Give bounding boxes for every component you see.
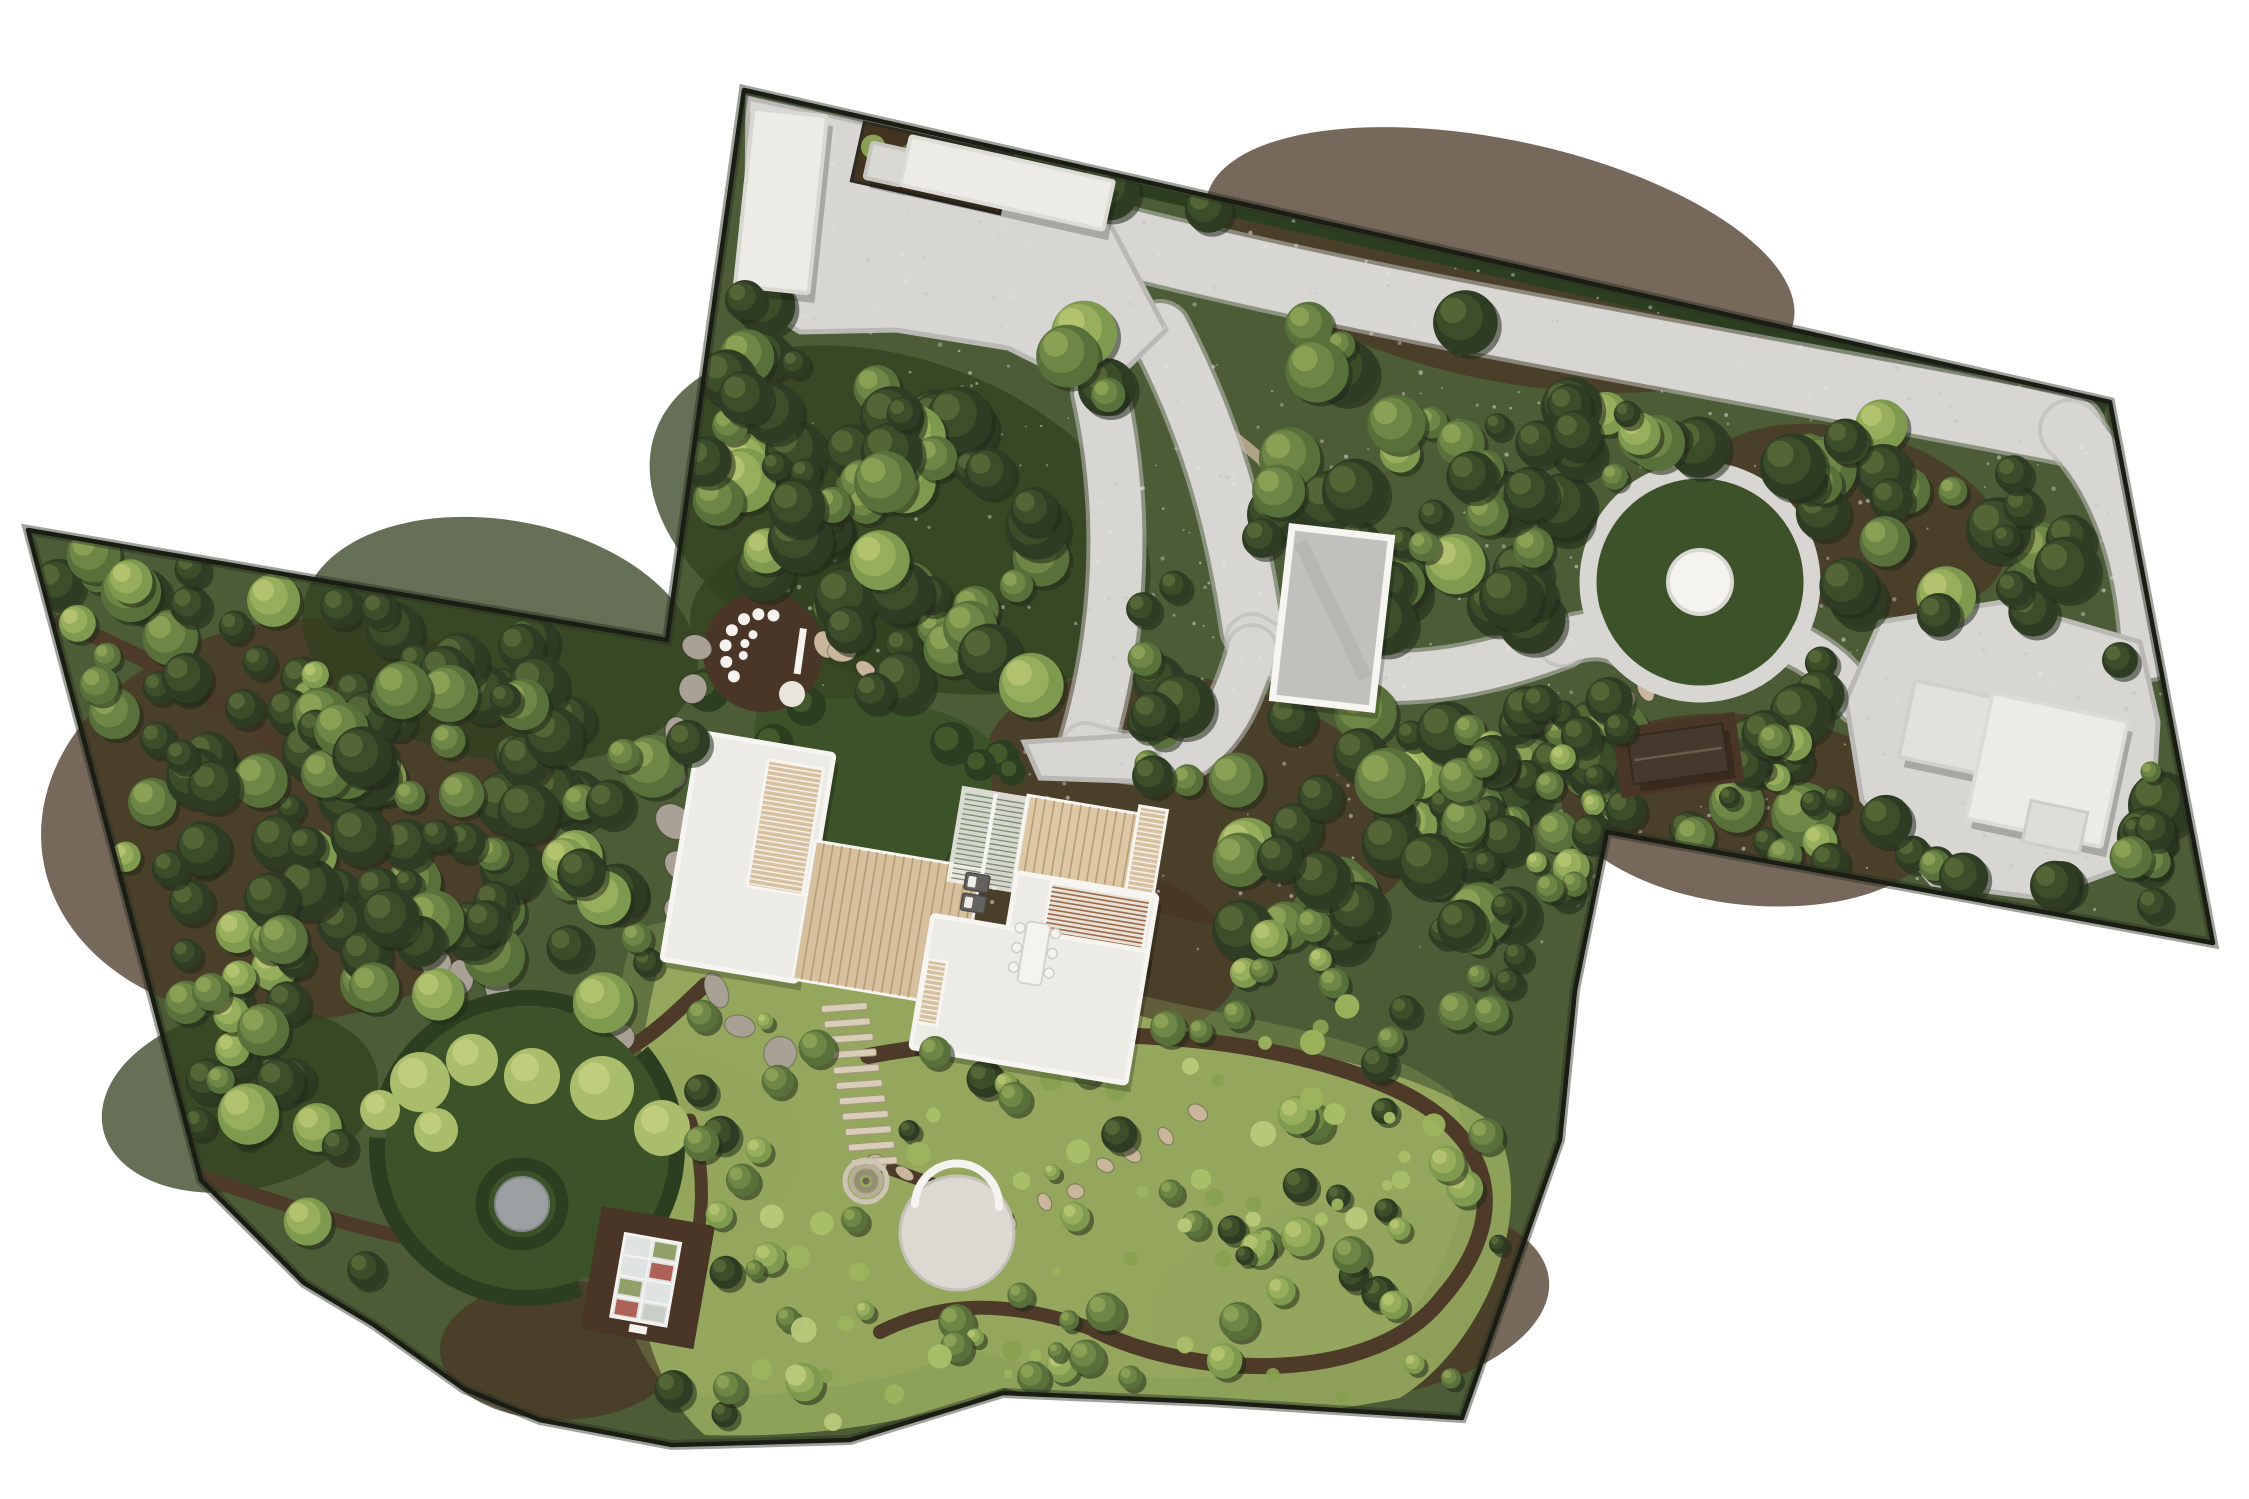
gravel-speckle: [1346, 784, 1350, 788]
gravel-speckle: [2063, 262, 2065, 264]
gravel-speckle: [1219, 700, 1221, 702]
tree-canopy-light: [1400, 724, 1412, 736]
gravel-speckle: [1917, 906, 1919, 908]
tree-canopy-light: [551, 930, 569, 948]
tree-canopy-light: [1215, 759, 1237, 781]
gravel-speckle: [1850, 651, 1852, 653]
gravel-speckle: [1046, 464, 1048, 466]
gravel-speckle: [1095, 560, 1099, 564]
gravel-speckle: [2127, 774, 2129, 776]
tree-canopy-light: [779, 1309, 789, 1319]
gravel-speckle: [1656, 112, 1659, 115]
gravel-speckle: [801, 314, 804, 317]
gravel-speckle: [1799, 345, 1803, 349]
meadow-shrub: [1004, 1369, 1013, 1378]
tree-canopy-light: [305, 664, 316, 675]
gravel-speckle: [1700, 806, 1702, 808]
gravel-speckle: [1875, 368, 1877, 370]
tree-canopy-light: [774, 485, 797, 508]
gravel-speckle: [1657, 312, 1659, 314]
garage-building: [735, 109, 827, 294]
meadow-shrub: [849, 1262, 869, 1282]
tree-canopy-light: [2143, 764, 2151, 772]
tree-canopy-light: [1329, 1187, 1339, 1197]
tree-canopy-light: [1767, 441, 1794, 468]
gravel-speckle: [1485, 544, 1489, 548]
tree-canopy-light: [1875, 483, 1892, 500]
gravel-speckle: [1110, 512, 1113, 515]
gravel-speckle: [1477, 269, 1480, 272]
tree-canopy-light: [326, 1133, 340, 1147]
tree-canopy-light: [1865, 522, 1885, 542]
tree-canopy-light: [113, 564, 131, 582]
gravel-speckle: [2075, 237, 2077, 239]
gravel-speckle: [2035, 939, 2038, 942]
gravel-speckle: [1176, 172, 1180, 176]
tree-canopy-light: [209, 1069, 220, 1080]
gravel-speckle: [1929, 137, 1933, 141]
gravel-speckle: [1502, 544, 1506, 548]
gravel-speckle: [1207, 582, 1210, 585]
tree-canopy-light: [379, 668, 402, 691]
gravel-speckle: [2077, 696, 2081, 700]
gravel-speckle: [2114, 296, 2118, 300]
gravel-speckle: [1418, 370, 1423, 375]
gravel-speckle: [2192, 732, 2195, 735]
tree-canopy-light: [1374, 401, 1397, 424]
tree-canopy-light: [2114, 841, 2131, 858]
gravel-speckle: [1865, 717, 1869, 721]
gravel-speckle: [1348, 798, 1351, 801]
gravel-speckle: [1076, 263, 1079, 266]
gravel-speckle: [1914, 944, 1917, 947]
gravel-speckle: [1271, 390, 1274, 393]
tree-canopy-light: [923, 1040, 936, 1053]
gravel-speckle: [1222, 564, 1226, 568]
gravel-speckle: [1084, 640, 1087, 643]
gravel-speckle: [1629, 926, 1632, 929]
gravel-speckle: [1183, 529, 1185, 531]
tree-canopy-light: [1380, 1029, 1391, 1040]
tree-canopy-light: [156, 854, 171, 869]
gravel-speckle: [1025, 426, 1027, 428]
tree-canopy-light: [493, 687, 505, 699]
gravel-speckle: [1953, 89, 1957, 93]
gravel-speckle: [1639, 467, 1641, 469]
tree-canopy-light: [302, 714, 317, 729]
dining-chair: [1046, 948, 1058, 960]
gravel-speckle: [2045, 852, 2048, 855]
tree-canopy-light: [253, 580, 274, 601]
tree-canopy-light: [1541, 816, 1558, 833]
gravel-speckle: [813, 317, 817, 321]
sun-lounger: [964, 872, 990, 893]
gravel-speckle: [1173, 160, 1176, 163]
gravel-speckle: [1173, 614, 1176, 617]
gravel-speckle: [1127, 153, 1129, 155]
gravel-speckle: [1776, 205, 1778, 207]
gravel-speckle: [1402, 392, 1406, 396]
tree-canopy-light: [226, 964, 240, 978]
gravel-speckle: [2182, 143, 2184, 145]
meadow-shrub: [1315, 1213, 1328, 1226]
tree-canopy-light: [1487, 821, 1507, 841]
tree-canopy-light: [1339, 734, 1360, 755]
tree-canopy-light: [1861, 405, 1882, 426]
gravel-speckle: [808, 606, 812, 610]
garden-stool: [726, 624, 738, 636]
tree-canopy-light: [444, 777, 462, 795]
gravel-speckle: [1062, 782, 1066, 786]
gravel-speckle: [1772, 103, 1775, 106]
meadow-shrub: [1324, 1103, 1346, 1125]
gravel-speckle: [1896, 130, 1899, 133]
gravel-speckle: [2055, 367, 2057, 369]
tree-canopy-light: [504, 788, 528, 812]
gravel-speckle: [1995, 206, 1998, 209]
gravel-speckle: [1385, 676, 1388, 679]
tree-canopy-light: [1944, 858, 1964, 878]
dining-chair: [1011, 942, 1023, 954]
tree-canopy-light: [1290, 307, 1309, 326]
gravel-speckle: [1661, 391, 1663, 393]
garden-pond: [495, 1177, 549, 1231]
gravel-speckle: [1189, 532, 1191, 534]
tree-canopy-light: [2139, 815, 2155, 831]
gravel-speckle: [1810, 419, 1812, 421]
gravel-speckle: [2196, 373, 2201, 378]
gravel-speckle: [1972, 104, 1976, 108]
tree-canopy-light: [1922, 598, 1940, 616]
tree-canopy-light: [219, 1036, 233, 1050]
gravel-speckle: [1070, 717, 1073, 720]
gravel-speckle: [2113, 190, 2115, 192]
tree-canopy-light: [133, 783, 152, 802]
gravel-speckle: [2009, 864, 2013, 868]
gravel-speckle: [832, 140, 835, 143]
gravel-speckle: [1766, 114, 1770, 118]
gravel-speckle: [1066, 796, 1070, 800]
gravel-speckle: [1021, 146, 1023, 148]
tree-canopy-light: [1923, 573, 1947, 597]
gravel-speckle: [999, 326, 1002, 329]
tree-canopy-light: [688, 1129, 702, 1143]
gravel-speckle: [1997, 455, 2001, 459]
tree-canopy-light: [1826, 564, 1849, 587]
tree-canopy-light: [144, 726, 158, 740]
tree-canopy-light: [785, 353, 796, 364]
gravel-speckle: [1164, 366, 1168, 370]
tree-canopy-light: [2126, 820, 2136, 830]
site-content: [34, 88, 2201, 1435]
tree-canopy-light: [1137, 760, 1154, 777]
tree-canopy-light: [1390, 1220, 1399, 1229]
tree-canopy-light: [844, 1209, 855, 1220]
tree-canopy-light: [1405, 840, 1431, 866]
gravel-speckle: [1129, 302, 1132, 305]
gravel-speckle: [1232, 473, 1235, 476]
gravel-speckle: [1028, 606, 1031, 609]
meadow-shrub: [1052, 1268, 1060, 1276]
tree-canopy-light: [174, 590, 190, 606]
gravel-speckle: [1075, 88, 1079, 92]
gravel-speckle: [1787, 360, 1789, 362]
gravel-speckle: [1504, 452, 1508, 456]
meadow-shrub: [1266, 1368, 1280, 1382]
tree-canopy-light: [1721, 789, 1730, 798]
meadow-shrub: [1258, 1036, 1272, 1050]
gravel-speckle: [2100, 539, 2103, 542]
gravel-speckle: [1856, 649, 1858, 651]
tree-canopy-light: [1923, 853, 1936, 866]
tree-canopy-light: [1586, 768, 1597, 779]
meadow-shrub: [760, 1204, 784, 1228]
gravel-speckle: [2119, 348, 2122, 351]
tree-canopy-light: [1440, 297, 1466, 323]
tree-canopy-light: [1815, 847, 1830, 862]
gravel-speckle: [1807, 394, 1810, 397]
gravel-speckle: [874, 303, 877, 306]
gravel-speckle: [1276, 272, 1278, 274]
tree-canopy-light: [1995, 527, 2006, 538]
gravel-speckle: [2007, 344, 2011, 348]
gravel-speckle: [1344, 454, 1348, 458]
gravel-speckle: [1741, 847, 1745, 851]
tree-canopy-light: [1377, 1201, 1387, 1211]
gravel-speckle: [1671, 147, 1673, 149]
meadow-shrub: [1206, 1189, 1224, 1207]
gravel-speckle: [1970, 183, 1973, 186]
gravel-speckle: [1121, 689, 1124, 692]
gravel-speckle: [1916, 877, 1919, 880]
meadow-shrub: [838, 1316, 854, 1332]
gravel-speckle: [924, 292, 928, 296]
gravel-speckle: [1832, 229, 1835, 232]
gravel-speckle: [909, 371, 912, 374]
gravel-speckle: [1204, 131, 1206, 133]
gravel-speckle: [1770, 245, 1774, 249]
tree-canopy-light: [1252, 961, 1262, 971]
gravel-speckle: [2120, 634, 2122, 636]
gravel-speckle: [2066, 122, 2069, 125]
gravel-speckle: [868, 330, 872, 334]
gravel-speckle: [1941, 95, 1945, 99]
gravel-speckle: [2071, 141, 2074, 144]
gravel-speckle: [1225, 475, 1229, 479]
gravel-speckle: [991, 296, 995, 300]
gravel-speckle: [934, 110, 937, 113]
gravel-speckle: [1179, 440, 1181, 442]
tree-canopy-light: [365, 596, 380, 611]
gravel-speckle: [1843, 255, 1846, 258]
tree-canopy-light: [1557, 416, 1577, 436]
meadow-shrub: [1182, 1058, 1199, 1075]
tree-canopy-light: [1509, 473, 1531, 495]
gravel-speckle: [1192, 622, 1196, 626]
tree-canopy-light: [339, 733, 363, 757]
tree-canopy-light: [830, 611, 849, 630]
gravel-speckle: [2070, 299, 2073, 302]
meadow-shrub: [819, 1369, 833, 1383]
hedge-highlight: [1001, 761, 1016, 776]
gravel-speckle: [832, 228, 834, 230]
dining-chair: [1050, 928, 1062, 940]
gravel-speckle: [1540, 940, 1543, 943]
gravel-speckle: [1492, 405, 1496, 409]
tree-canopy-light: [1073, 1343, 1087, 1357]
meadow-shrub: [791, 1317, 817, 1343]
tree-canopy-light: [831, 430, 853, 452]
gravel-speckle: [1429, 643, 1432, 646]
gravel-speckle: [1216, 364, 1218, 366]
gravel-speckle: [1754, 128, 1757, 131]
gravel-speckle: [1419, 946, 1421, 948]
gravel-speckle: [1108, 149, 1111, 152]
gravel-speckle: [1124, 596, 1128, 600]
tree-canopy-light: [1432, 793, 1444, 805]
gravel-speckle: [2194, 549, 2198, 553]
gravel-speckle: [2092, 185, 2096, 189]
gravel-speckle: [2196, 163, 2200, 167]
tree-canopy-light: [1002, 1086, 1015, 1099]
gravel-speckle: [2057, 288, 2059, 290]
tree-canopy-light: [1246, 522, 1262, 538]
gravel-speckle: [1517, 391, 1520, 394]
gravel-speckle: [1570, 556, 1573, 559]
gravel-speckle: [1734, 211, 1738, 215]
tree-canopy-light: [729, 284, 745, 300]
gravel-speckle: [1197, 466, 1200, 469]
gravel-speckle: [1007, 365, 1010, 368]
tree-canopy-light: [942, 1308, 956, 1322]
meadow-shrub: [1422, 1113, 1445, 1136]
gravel-speckle: [2010, 233, 2013, 236]
gravel-speckle: [1858, 500, 1862, 504]
gravel-speckle: [1105, 730, 1108, 733]
dining-chair: [1008, 961, 1020, 973]
tree-canopy-light: [250, 878, 272, 900]
gravel-speckle: [1575, 565, 1579, 569]
gravel-speckle: [1770, 914, 1773, 917]
tree-canopy-light: [1046, 1166, 1052, 1172]
tree-canopy-light: [1412, 534, 1424, 546]
sun-lounger: [960, 893, 986, 914]
gravel-speckle: [1892, 597, 1896, 601]
gravel-speckle: [1213, 285, 1217, 289]
gravel-speckle: [1899, 899, 1903, 903]
tree-canopy-light: [1337, 1240, 1352, 1255]
gravel-speckle: [1160, 556, 1164, 560]
tree-canopy-light: [1255, 924, 1270, 939]
gravel-speckle: [1870, 207, 1873, 210]
gravel-speckle: [1766, 131, 1770, 135]
gravel-speckle: [1162, 507, 1165, 510]
tree-canopy-light: [292, 831, 307, 846]
gravel-speckle: [2108, 100, 2111, 103]
gravel-speckle: [2024, 652, 2027, 655]
gravel-speckle: [1289, 107, 1292, 110]
gravel-speckle: [2173, 337, 2175, 339]
gravel-speckle: [930, 254, 933, 257]
tree-canopy-light: [403, 648, 417, 662]
gravel-speckle: [1174, 447, 1178, 451]
meadow-shrub: [1345, 1207, 1367, 1229]
shrub-highlight: [641, 1106, 669, 1134]
gravel-speckle: [1011, 294, 1015, 298]
gravel-speckle: [2194, 798, 2197, 801]
garden-table: [779, 681, 805, 707]
gravel-speckle: [2106, 857, 2110, 861]
gravel-speckle: [1067, 417, 1069, 419]
meadow-shrub: [926, 1108, 941, 1123]
tree-canopy-light: [566, 788, 580, 802]
gravel-speckle: [1754, 337, 1757, 340]
gravel-speckle: [1765, 110, 1768, 113]
gravel-speckle: [981, 95, 984, 98]
gravel-speckle: [1315, 292, 1318, 295]
tree-canopy-light: [803, 1034, 818, 1049]
tree-canopy-light: [1136, 697, 1154, 715]
tree-canopy-light: [1679, 821, 1695, 837]
gravel-speckle: [1336, 774, 1338, 776]
tree-canopy-light: [1776, 690, 1801, 715]
gravel-speckle: [2158, 468, 2160, 470]
tree-canopy-light: [1826, 789, 1837, 800]
shrub-highlight: [420, 1112, 442, 1134]
gravel-speckle: [1407, 656, 1410, 659]
gravel-speckle: [1038, 143, 1040, 145]
meadow-shrub: [1246, 1212, 1261, 1227]
gravel-speckle: [1569, 638, 1573, 642]
gravel-speckle: [1910, 208, 1912, 210]
garden-stool: [767, 609, 779, 621]
gravel-speckle: [1162, 874, 1164, 876]
meadow-shrub: [1029, 1349, 1041, 1361]
gravel-speckle: [1972, 211, 1976, 215]
house-branch: [1086, 392, 1116, 748]
shrub-highlight: [398, 1058, 428, 1088]
gravel-speckle: [1398, 341, 1402, 345]
tree-canopy-light: [1010, 1285, 1020, 1295]
gravel-speckle: [2029, 932, 2031, 934]
gravel-speckle: [2079, 445, 2083, 449]
tree-canopy-light: [1006, 660, 1032, 686]
tree-canopy-light: [1457, 718, 1469, 730]
tree-canopy-light: [1617, 404, 1628, 415]
gravel-speckle: [1844, 743, 1846, 745]
tree-canopy-light: [1095, 381, 1109, 395]
gravel-speckle: [797, 585, 802, 590]
gravel-speckle: [1604, 908, 1607, 911]
gravel-speckle: [1029, 246, 1032, 249]
meadow-shrub: [1336, 1391, 1349, 1404]
gravel-speckle: [1386, 272, 1389, 275]
gravel-speckle: [2157, 331, 2160, 334]
gravel-speckle: [1650, 946, 1654, 950]
tree-canopy-light: [1491, 1237, 1499, 1245]
tree-canopy-light: [949, 607, 971, 629]
gravel-speckle: [1107, 597, 1111, 601]
meadow-shrub: [1382, 1180, 1393, 1191]
gravel-speckle: [1029, 773, 1031, 775]
tree-canopy-light: [965, 631, 991, 657]
gravel-speckle: [2015, 241, 2018, 244]
gravel-speckle: [812, 422, 814, 424]
tree-canopy-light: [1553, 747, 1563, 757]
tree-canopy-light: [1442, 424, 1461, 443]
meadow-shrub: [1335, 994, 1359, 1018]
gravel-speckle: [1202, 625, 1205, 628]
